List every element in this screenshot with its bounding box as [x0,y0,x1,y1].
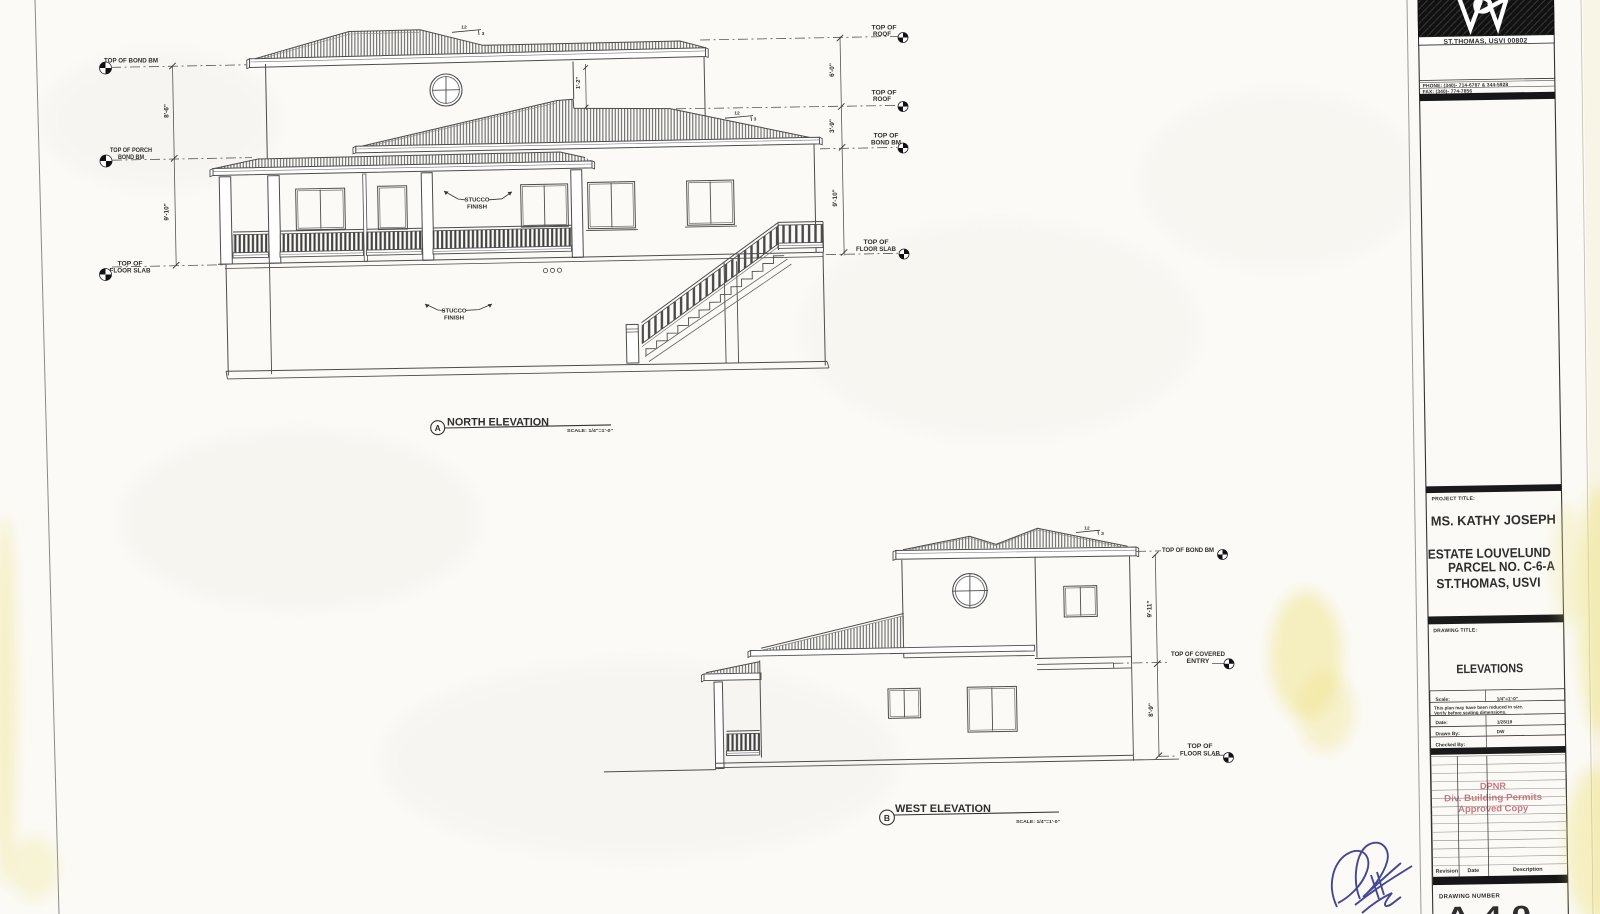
svg-text:PROJECT TITLE:: PROJECT TITLE: [1432,496,1476,503]
svg-text:STUCCO: STUCCO [465,198,490,204]
svg-text:ENTRY: ENTRY [1187,658,1211,665]
svg-text:3'-9": 3'-9" [829,119,836,133]
svg-text:DRAWING NUMBER: DRAWING NUMBER [1439,893,1501,900]
svg-text:Date:: Date: [1435,720,1448,726]
svg-text:DW: DW [1497,729,1505,734]
svg-text:Revision: Revision [1436,868,1459,874]
svg-text:FLOOR SLAB: FLOOR SLAB [1180,751,1221,758]
svg-text:8'-9": 8'-9" [1148,703,1155,717]
svg-text:DRAWING TITLE:: DRAWING TITLE: [1433,628,1477,635]
svg-text:6'-0": 6'-0" [829,63,836,77]
svg-text:ROOF: ROOF [873,31,891,38]
svg-text:12: 12 [461,25,467,31]
svg-text:9'-10": 9'-10" [832,189,839,206]
svg-text:TOP OF: TOP OF [1188,743,1213,750]
svg-text:MS. KATHY JOSEPH: MS. KATHY JOSEPH [1431,512,1556,529]
svg-text:9'-11": 9'-11" [1147,601,1154,618]
svg-text:1/28/19: 1/28/19 [1497,719,1513,724]
svg-text:FINISH: FINISH [444,316,464,322]
svg-text:Approved Copy: Approved Copy [1458,803,1529,814]
svg-text:9'-10": 9'-10" [164,203,171,220]
svg-text:12: 12 [734,111,740,117]
svg-text:Date: Date [1467,868,1479,874]
svg-text:TOP OF: TOP OF [874,133,899,140]
svg-text:A: A [435,423,441,433]
svg-text:3: 3 [482,31,485,37]
svg-text:FLOOR SLAB: FLOOR SLAB [110,268,152,275]
svg-text:3: 3 [754,117,757,123]
svg-text:SCALE: 1/4"=1'-0": SCALE: 1/4"=1'-0" [1016,819,1060,825]
svg-text:TOP OF BOND BM: TOP OF BOND BM [104,58,158,65]
svg-text:TOP OF BOND BM: TOP OF BOND BM [1162,547,1214,554]
svg-text:ST.THOMAS, USVI 00802: ST.THOMAS, USVI 00802 [1443,38,1527,46]
svg-text:A-4.0: A-4.0 [1445,900,1531,914]
svg-text:8'-6": 8'-6" [164,104,171,118]
svg-text:12: 12 [1084,526,1090,532]
svg-text:ELEVATIONS: ELEVATIONS [1456,661,1523,676]
svg-text:Drawn By:: Drawn By: [1435,731,1460,737]
svg-text:TOP OF COVERED: TOP OF COVERED [1171,651,1226,658]
svg-text:Checked By:: Checked By: [1435,742,1465,748]
svg-text:TOP OF: TOP OF [864,239,889,246]
svg-text:ST.THOMAS, USVI: ST.THOMAS, USVI [1436,575,1540,592]
svg-text:PARCEL NO. C-6-A: PARCEL NO. C-6-A [1448,558,1556,575]
svg-text:1/4"=1'-0": 1/4"=1'-0" [1497,696,1518,701]
svg-text:Scale:: Scale: [1435,697,1450,703]
svg-text:FLOOR SLAB: FLOOR SLAB [856,246,897,253]
svg-text:FINISH: FINISH [467,205,487,211]
svg-text:TOP OF PORCH: TOP OF PORCH [110,147,152,154]
svg-text:Description: Description [1513,867,1543,873]
svg-text:STUCCO: STUCCO [442,309,467,315]
svg-text:B: B [884,813,890,823]
svg-text:ROOF: ROOF [873,96,891,103]
svg-text:DPNR: DPNR [1480,781,1507,791]
svg-text:1'-2": 1'-2" [576,77,582,89]
svg-text:3: 3 [1101,531,1104,537]
svg-text:BOND BM: BOND BM [871,140,901,147]
svg-text:SCALE: 1/4"=1'-0": SCALE: 1/4"=1'-0" [567,428,613,434]
